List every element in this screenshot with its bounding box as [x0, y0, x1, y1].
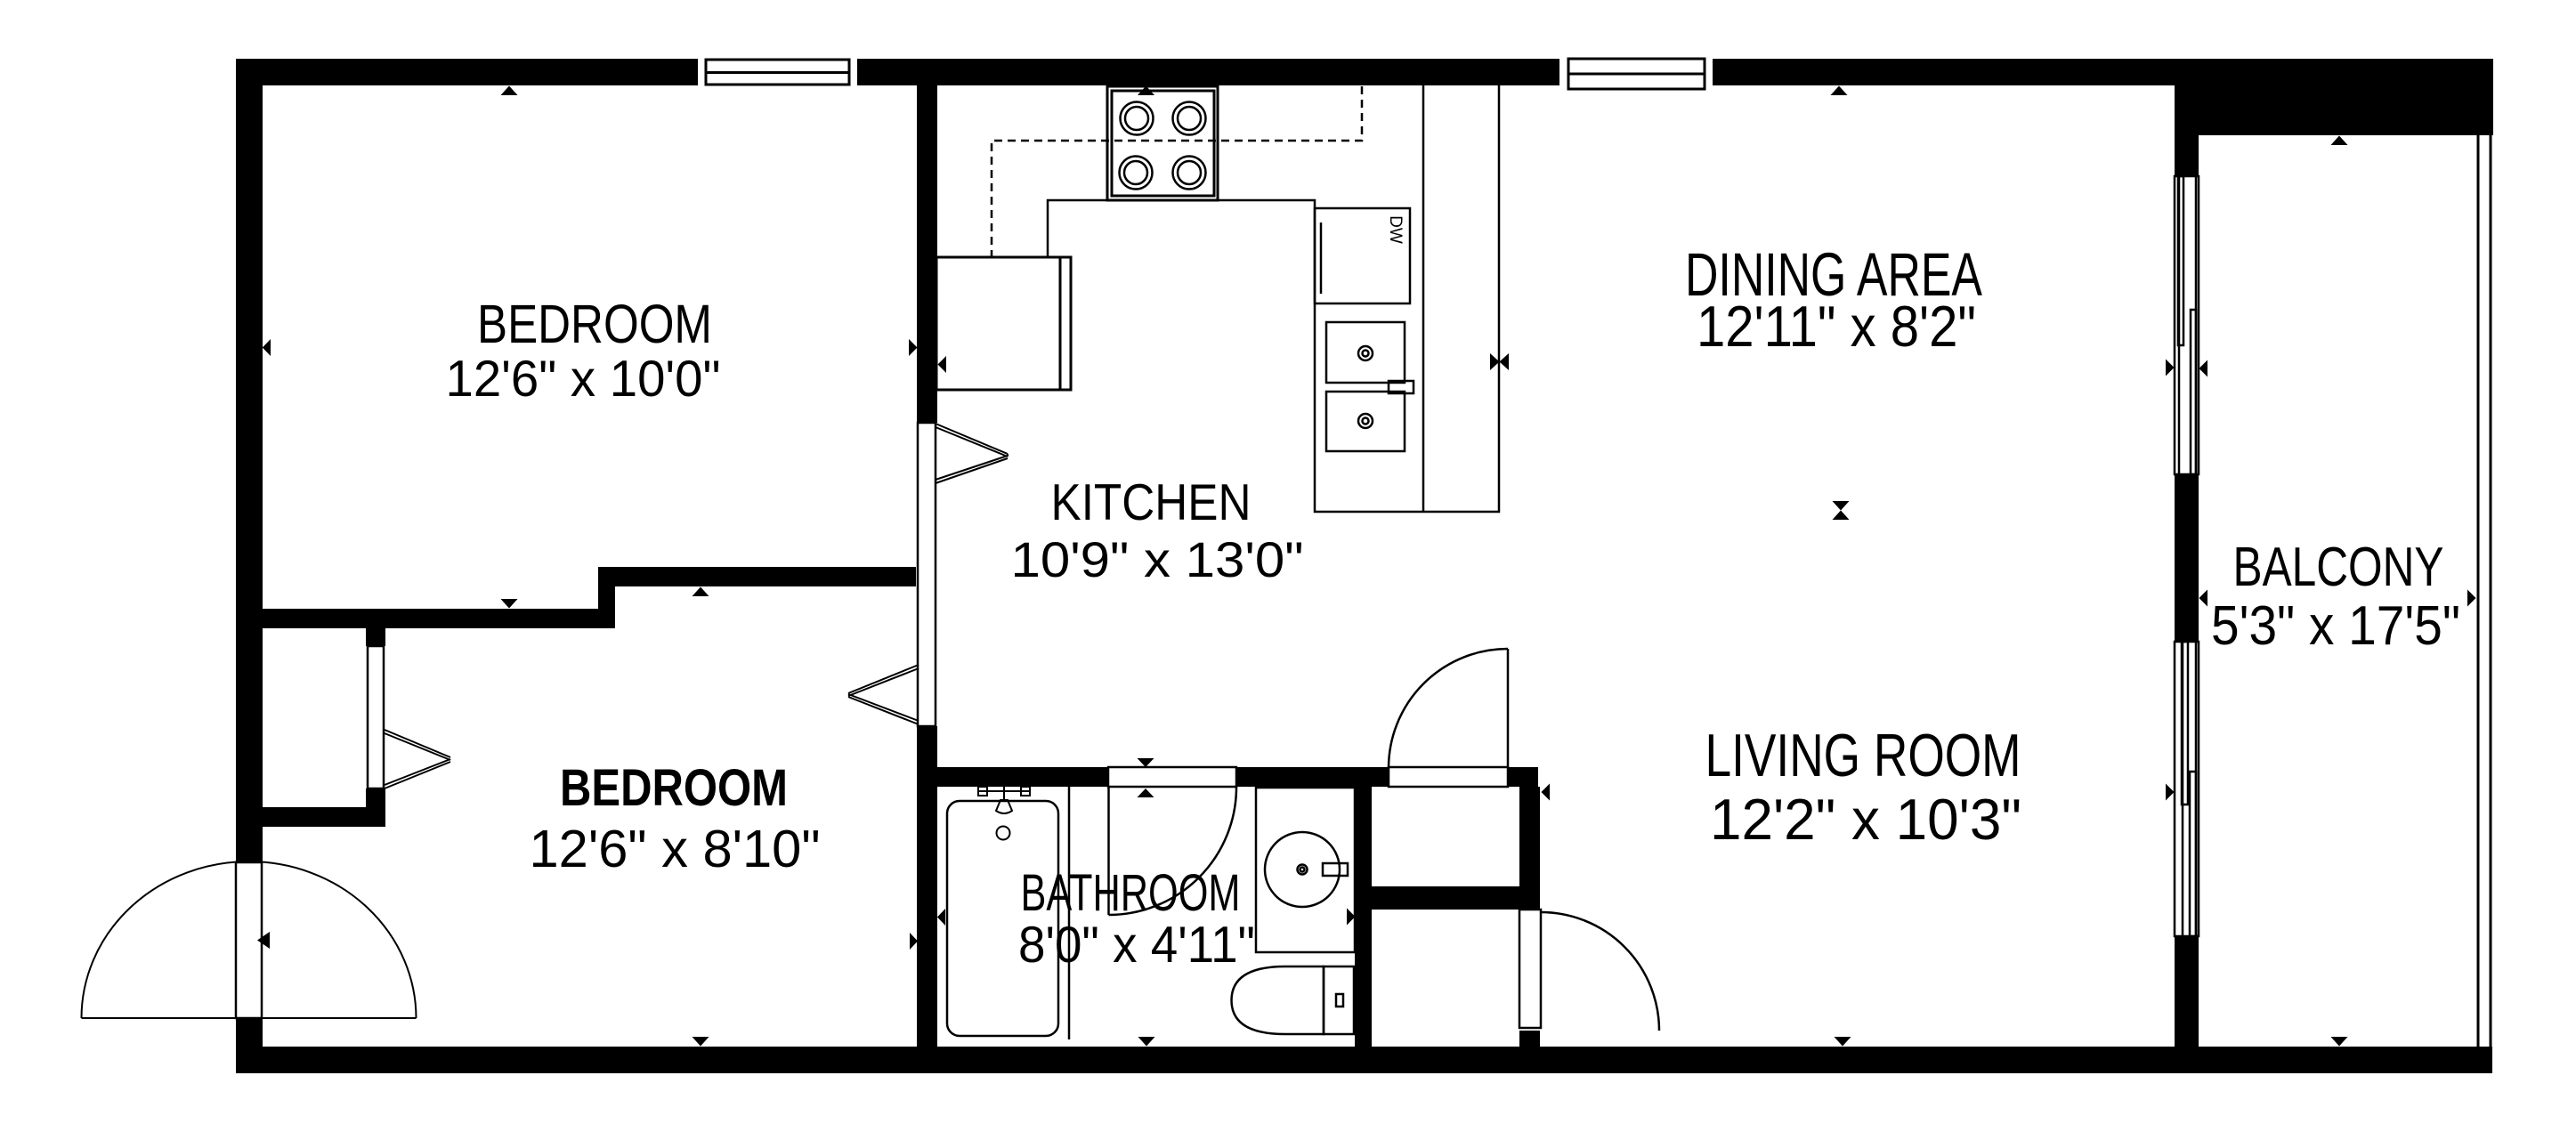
svg-text:BEDROOM: BEDROOM: [477, 294, 712, 355]
svg-text:12'6" x 10'0": 12'6" x 10'0": [446, 351, 721, 408]
svg-text:KITCHEN: KITCHEN: [1051, 474, 1252, 531]
svg-text:BEDROOM: BEDROOM: [560, 759, 788, 817]
svg-text:10'9" x 13'0": 10'9" x 13'0": [1011, 531, 1304, 587]
svg-text:12'6" x 8'10": 12'6" x 8'10": [530, 820, 821, 878]
svg-text:BALCONY: BALCONY: [2233, 537, 2444, 598]
svg-text:BATHROOM: BATHROOM: [1021, 864, 1241, 922]
svg-text:LIVING ROOM: LIVING ROOM: [1705, 722, 2021, 789]
svg-text:8'0" x 4'11": 8'0" x 4'11": [1018, 917, 1255, 974]
svg-text:12'11" x 8'2": 12'11" x 8'2": [1697, 295, 1976, 359]
svg-text:12'2" x 10'3": 12'2" x 10'3": [1710, 787, 2021, 852]
svg-text:5'3" x 17'5": 5'3" x 17'5": [2211, 595, 2460, 657]
svg-text:DW: DW: [1386, 215, 1405, 244]
